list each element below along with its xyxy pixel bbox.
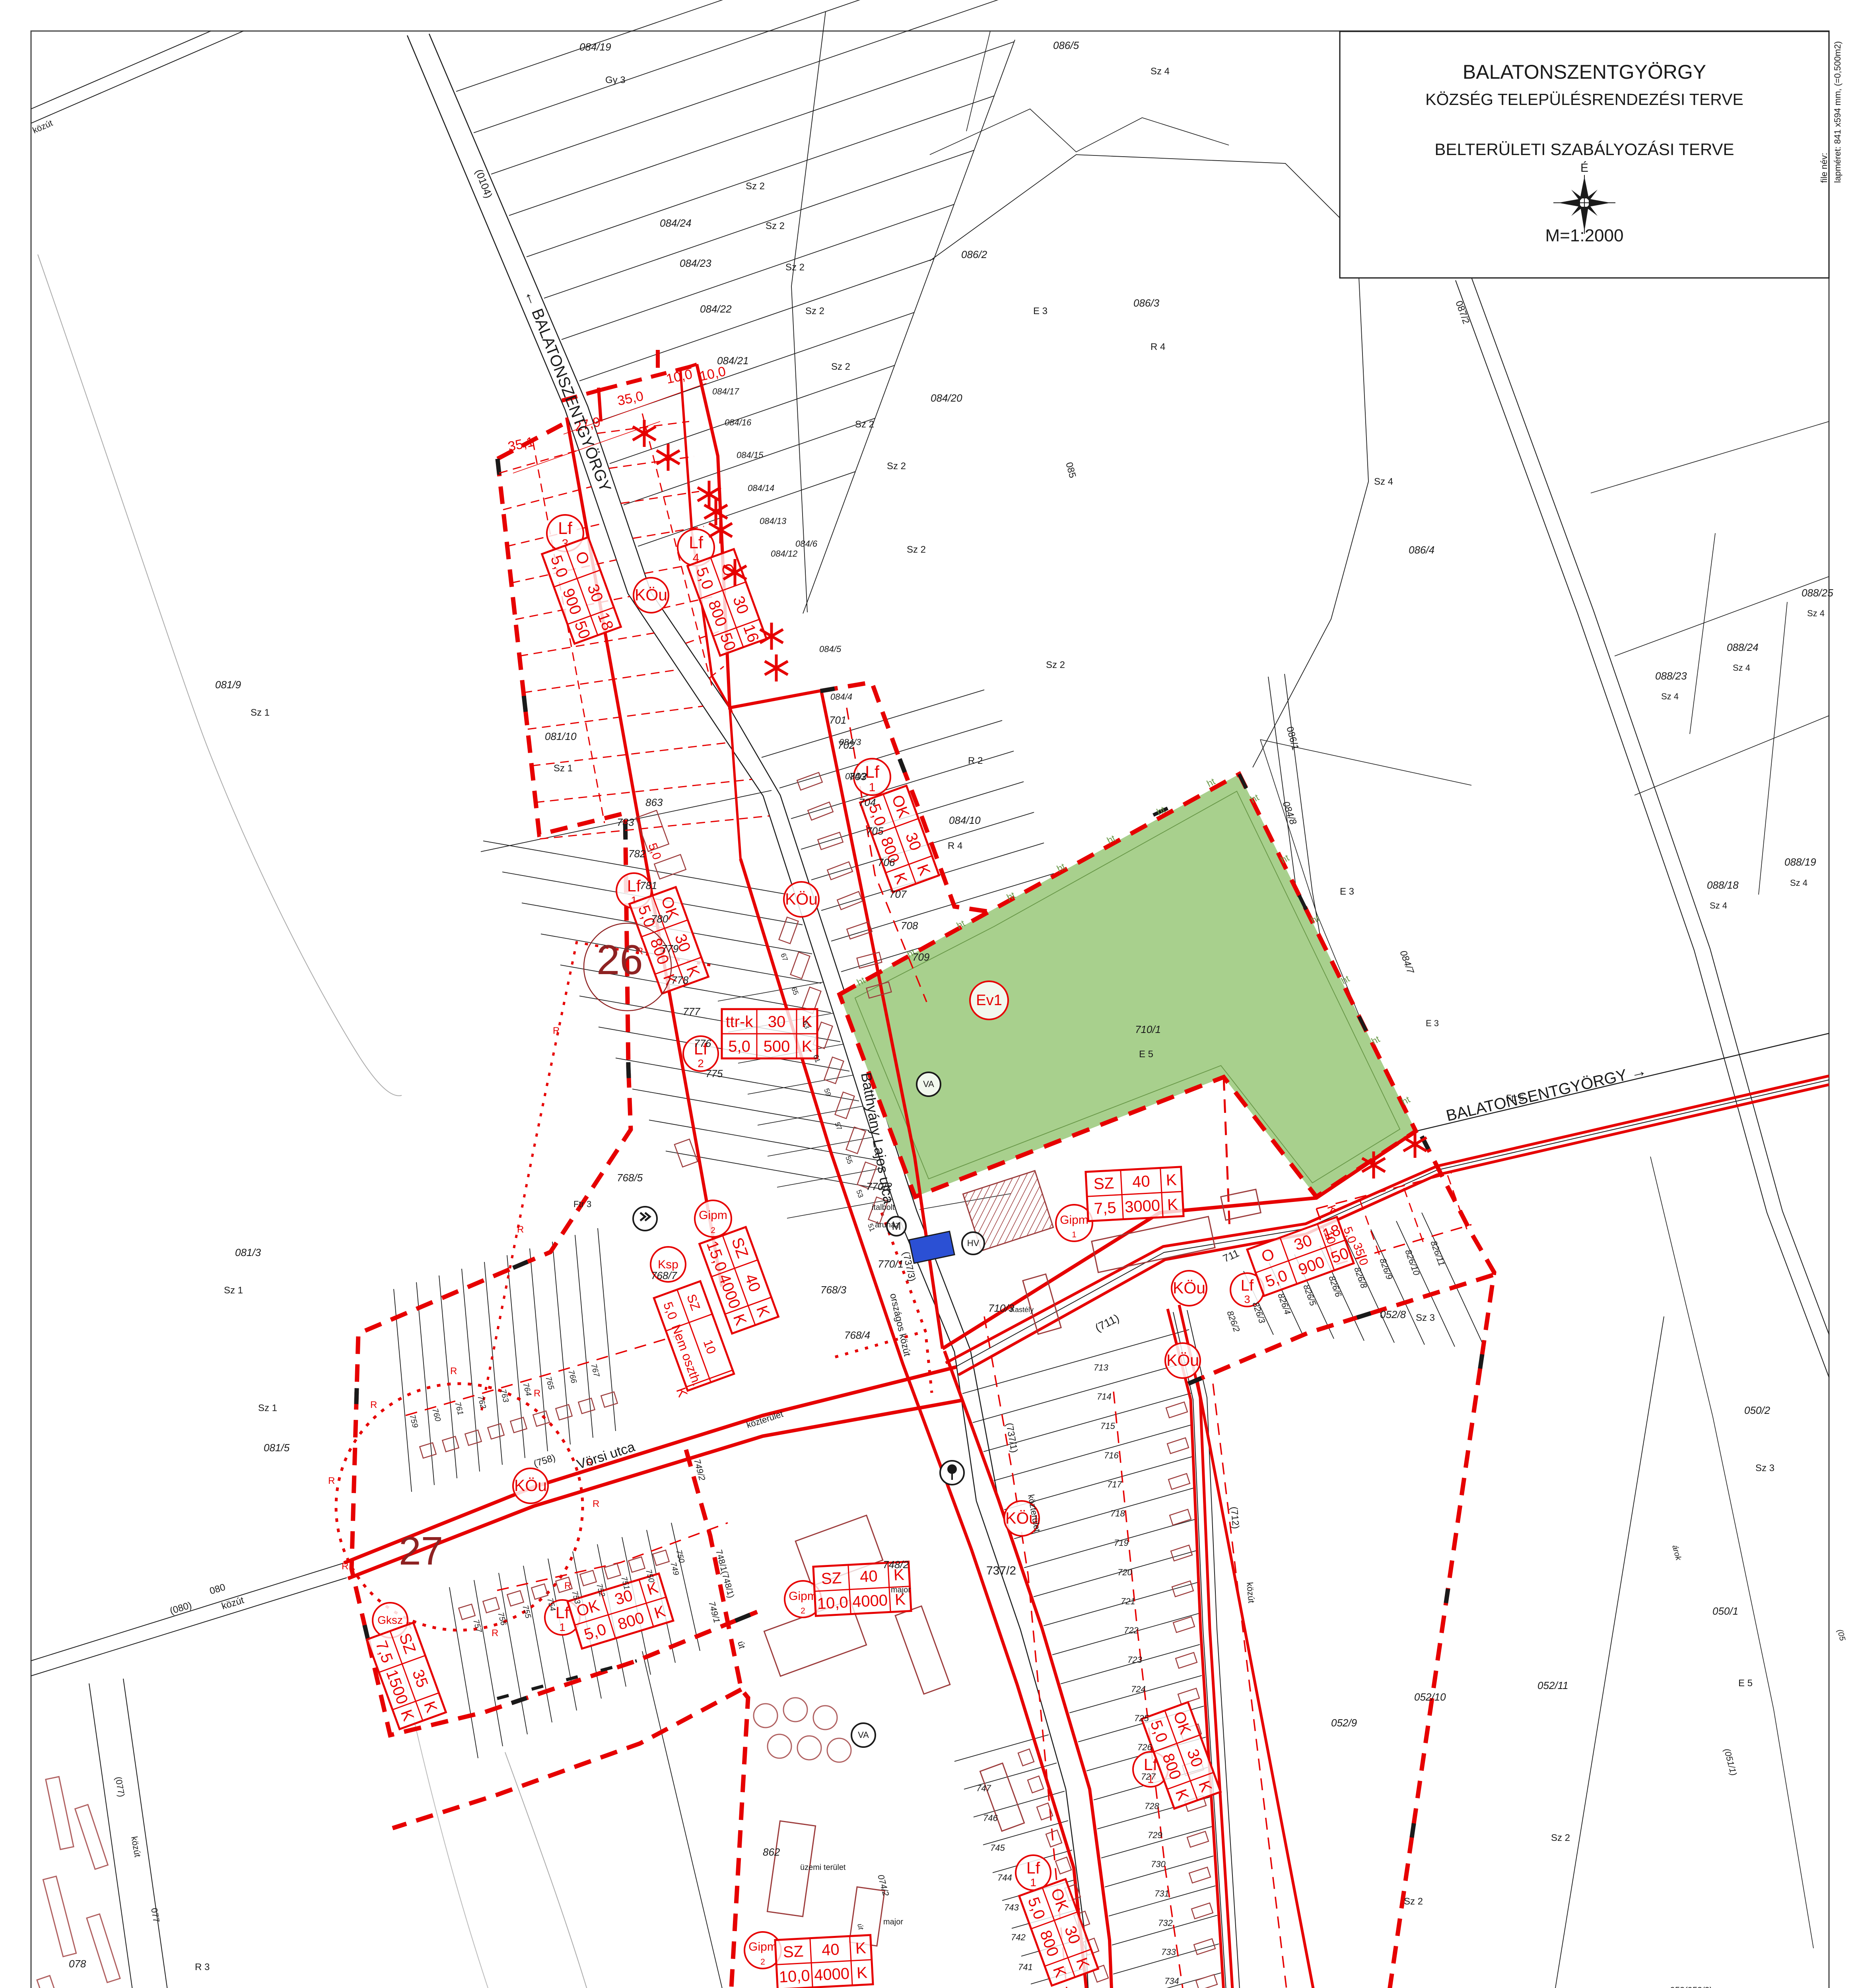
svg-text:748/2: 748/2: [883, 1559, 909, 1571]
svg-text:778: 778: [671, 974, 689, 986]
svg-text:Sz 4: Sz 4: [1151, 66, 1170, 77]
svg-text:4000: 4000: [814, 1965, 850, 1984]
svg-text:714: 714: [1097, 1392, 1112, 1402]
svg-text:R 4: R 4: [1151, 342, 1165, 352]
svg-text:728: 728: [1145, 1801, 1159, 1811]
svg-text:Sz 1: Sz 1: [258, 1403, 277, 1413]
svg-text:052/9: 052/9: [1331, 1717, 1357, 1729]
svg-text:Lf: Lf: [865, 763, 880, 782]
svg-text:M=1:2000: M=1:2000: [1545, 226, 1624, 245]
svg-text:863: 863: [645, 796, 663, 808]
svg-text:K: K: [1166, 1171, 1177, 1189]
svg-text:Sz 2: Sz 2: [1551, 1833, 1570, 1843]
svg-text:084/19: 084/19: [579, 41, 611, 53]
svg-text:VA: VA: [923, 1079, 934, 1089]
svg-text:783: 783: [617, 816, 634, 828]
svg-text:major: major: [883, 1918, 903, 1926]
svg-text:716: 716: [1104, 1450, 1119, 1460]
svg-text:R: R: [553, 1025, 560, 1036]
svg-text:088/19: 088/19: [1784, 856, 1816, 868]
svg-text:R 3: R 3: [195, 1962, 210, 1972]
svg-text:500: 500: [764, 1038, 790, 1055]
svg-text:744: 744: [997, 1873, 1012, 1883]
svg-text:Lf: Lf: [627, 877, 641, 895]
svg-text:2: 2: [711, 1226, 715, 1235]
svg-text:1: 1: [1030, 1876, 1036, 1889]
svg-text:086/3: 086/3: [1133, 297, 1160, 309]
svg-text:719: 719: [1114, 1538, 1129, 1548]
svg-text:Sz 4: Sz 4: [1374, 476, 1393, 487]
svg-text:E 5: E 5: [1738, 1678, 1753, 1689]
svg-text:áruház: áruház: [875, 1221, 899, 1229]
svg-text:Gipm: Gipm: [748, 1940, 777, 1953]
svg-text:Lf: Lf: [558, 519, 573, 538]
svg-text:084/23: 084/23: [680, 257, 711, 269]
svg-text:780: 780: [651, 913, 669, 925]
svg-text:K: K: [1167, 1196, 1178, 1213]
svg-text:710/1: 710/1: [1135, 1023, 1161, 1035]
svg-text:1: 1: [1072, 1230, 1077, 1239]
svg-text:742: 742: [1011, 1932, 1026, 1942]
svg-text:709: 709: [912, 951, 929, 963]
svg-text:SZ: SZ: [1093, 1175, 1114, 1193]
svg-text:3: 3: [1244, 1293, 1250, 1305]
svg-text:086/5: 086/5: [1053, 39, 1079, 51]
svg-text:Sz 1: Sz 1: [554, 763, 573, 774]
svg-text:052/11: 052/11: [1537, 1679, 1568, 1691]
svg-text:708: 708: [901, 920, 918, 932]
svg-text:084/12: 084/12: [771, 549, 797, 559]
svg-text:Sz 2: Sz 2: [1046, 660, 1065, 670]
svg-text:Sz 2: Sz 2: [831, 361, 850, 372]
svg-text:081/9: 081/9: [215, 679, 241, 691]
svg-text:715: 715: [1100, 1421, 1115, 1431]
svg-text:KÖu: KÖu: [1173, 1279, 1205, 1297]
svg-text:776: 776: [694, 1037, 711, 1049]
svg-text:704: 704: [859, 796, 876, 808]
svg-text:Sz 2: Sz 2: [805, 306, 824, 316]
svg-text:Sz 3: Sz 3: [1755, 1463, 1774, 1474]
svg-text:729: 729: [1148, 1830, 1162, 1840]
svg-text:702: 702: [838, 739, 855, 751]
svg-text:R: R: [593, 1499, 599, 1509]
svg-text:084/24: 084/24: [660, 217, 692, 229]
svg-text:Sz 1: Sz 1: [251, 707, 270, 718]
svg-text:Gy 3: Gy 3: [605, 75, 626, 85]
svg-text:27: 27: [399, 1529, 443, 1573]
svg-text:üzemi terület: üzemi terület: [800, 1863, 846, 1872]
svg-text:084/13: 084/13: [760, 516, 787, 526]
svg-text:SZ: SZ: [821, 1569, 842, 1588]
svg-text:782: 782: [628, 848, 646, 860]
svg-text:R 2: R 2: [968, 755, 983, 766]
svg-text:722: 722: [1124, 1625, 1139, 1635]
svg-text:R: R: [450, 1366, 457, 1376]
svg-text:Sz 2: Sz 2: [746, 181, 765, 192]
svg-text:Sz 4: Sz 4: [1661, 691, 1679, 701]
svg-text:701: 701: [829, 714, 846, 726]
svg-text:717: 717: [1107, 1479, 1122, 1489]
svg-text:italbolt: italbolt: [872, 1203, 895, 1212]
svg-text:052/10: 052/10: [1414, 1691, 1446, 1703]
svg-text:741: 741: [1018, 1962, 1033, 1972]
svg-text:Sz 4: Sz 4: [1733, 663, 1750, 673]
svg-text:Ev1: Ev1: [976, 992, 1002, 1009]
svg-text:084/10: 084/10: [949, 814, 981, 826]
svg-text:4000: 4000: [852, 1592, 888, 1611]
svg-text:file név:: file név:: [1819, 153, 1829, 183]
svg-text:770/2: 770/2: [866, 1180, 892, 1192]
svg-text:084/14: 084/14: [748, 483, 774, 493]
svg-text:088/23: 088/23: [1655, 670, 1687, 682]
svg-text:084/17: 084/17: [712, 386, 739, 396]
svg-text:086/4: 086/4: [1409, 544, 1434, 556]
svg-text:081/3: 081/3: [235, 1246, 261, 1258]
svg-text:R: R: [534, 1388, 540, 1399]
svg-text:Ftr 5: Ftr 5: [1506, 1093, 1524, 1103]
svg-text:Sz 2: Sz 2: [785, 262, 805, 273]
svg-text:733: 733: [1161, 1947, 1176, 1957]
svg-text:2: 2: [698, 1057, 704, 1070]
svg-text:Gipm: Gipm: [789, 1590, 817, 1603]
svg-text:1: 1: [559, 1621, 566, 1633]
svg-text:Sz 2: Sz 2: [887, 461, 906, 472]
svg-text:SZ: SZ: [783, 1943, 804, 1961]
svg-text:726: 726: [1137, 1742, 1152, 1752]
svg-text:lapméret: 841 x594 mm, (=0,500: lapméret: 841 x594 mm, (=0,500m2): [1833, 41, 1843, 183]
svg-text:R: R: [370, 1400, 377, 1410]
svg-text:Ftr 3: Ftr 3: [573, 1199, 591, 1209]
svg-text:Gipm: Gipm: [1060, 1213, 1088, 1227]
svg-text:Sz 3: Sz 3: [1416, 1312, 1435, 1323]
svg-text:768/4: 768/4: [844, 1329, 870, 1341]
svg-text:078: 078: [69, 1958, 86, 1970]
svg-text:ttr-k: ttr-k: [726, 1013, 754, 1031]
svg-text:732: 732: [1158, 1918, 1173, 1928]
svg-text:Lf: Lf: [556, 1604, 569, 1622]
svg-text:086/2: 086/2: [961, 248, 987, 260]
svg-text:770/1: 770/1: [878, 1258, 904, 1270]
svg-text:K: K: [855, 1939, 867, 1957]
svg-text:KÖu: KÖu: [514, 1476, 547, 1495]
svg-text:40: 40: [859, 1567, 878, 1586]
svg-text:HV: HV: [967, 1238, 980, 1248]
svg-text:725: 725: [1134, 1713, 1149, 1723]
svg-text:050/1: 050/1: [1712, 1605, 1738, 1617]
svg-text:721: 721: [1121, 1596, 1135, 1606]
svg-text:781: 781: [640, 879, 657, 891]
svg-text:Kastély: Kastély: [1010, 1306, 1034, 1314]
svg-text:E 3: E 3: [1340, 886, 1354, 897]
svg-text:KÖu: KÖu: [785, 890, 818, 908]
svg-text:BELTERÜLETI SZABÁLYOZÁSI TERVE: BELTERÜLETI SZABÁLYOZÁSI TERVE: [1434, 140, 1734, 159]
svg-text:084/16: 084/16: [725, 417, 752, 427]
svg-text:768/5: 768/5: [617, 1172, 643, 1184]
svg-text:745: 745: [990, 1843, 1005, 1853]
svg-text:Lf: Lf: [689, 533, 704, 552]
svg-text:720: 720: [1118, 1567, 1132, 1577]
svg-text:081/5: 081/5: [264, 1442, 290, 1454]
svg-text:30: 30: [768, 1013, 786, 1031]
svg-text:730: 730: [1151, 1859, 1166, 1869]
svg-text:BALATONSZENTGYÖRGY: BALATONSZENTGYÖRGY: [1463, 61, 1706, 83]
svg-text:E 3: E 3: [1426, 1018, 1439, 1028]
svg-text:747: 747: [976, 1783, 991, 1793]
svg-text:084/15: 084/15: [737, 450, 764, 460]
svg-text:050/2: 050/2: [1744, 1404, 1771, 1416]
svg-text:(712): (712): [1228, 1506, 1241, 1529]
svg-text:707: 707: [889, 888, 907, 900]
svg-text:706: 706: [878, 856, 895, 868]
svg-text:7,5: 7,5: [1094, 1199, 1117, 1218]
svg-text:3000: 3000: [1124, 1197, 1160, 1216]
svg-text:084/6: 084/6: [795, 539, 818, 549]
svg-text:VA: VA: [858, 1730, 869, 1740]
svg-text:40: 40: [821, 1941, 840, 1959]
svg-text:2: 2: [760, 1957, 765, 1967]
svg-text:724: 724: [1131, 1684, 1146, 1694]
svg-text:1: 1: [869, 781, 876, 794]
svg-text:2: 2: [801, 1606, 805, 1615]
svg-text:081/10: 081/10: [545, 730, 577, 742]
svg-text:727: 727: [1141, 1772, 1156, 1782]
svg-text:KÖZSÉG TELEPÜLÉSRENDEZÉSI TERV: KÖZSÉG TELEPÜLÉSRENDEZÉSI TERVE: [1425, 90, 1743, 109]
svg-text:713: 713: [1094, 1363, 1108, 1373]
svg-text:10,0: 10,0: [779, 1967, 810, 1986]
svg-text:084/22: 084/22: [700, 303, 732, 315]
svg-text:Sz 1: Sz 1: [224, 1285, 243, 1296]
svg-text:Sz 2: Sz 2: [855, 419, 874, 430]
svg-text:Sz 4: Sz 4: [1710, 901, 1727, 911]
svg-text:40: 40: [1132, 1173, 1151, 1191]
svg-text:R: R: [328, 1475, 335, 1486]
svg-text:Gipm: Gipm: [699, 1209, 727, 1222]
svg-text:052/8: 052/8: [1380, 1309, 1406, 1320]
svg-text:R 4: R 4: [948, 841, 962, 851]
svg-text:major: major: [891, 1586, 911, 1594]
svg-text:743: 743: [1004, 1903, 1019, 1912]
svg-text:768/3: 768/3: [820, 1284, 847, 1296]
svg-text:5,0: 5,0: [728, 1038, 750, 1055]
svg-text:26: 26: [597, 937, 643, 983]
svg-text:E 5: E 5: [1139, 1049, 1153, 1060]
svg-text:775: 775: [706, 1068, 723, 1079]
svg-text:Sz 4: Sz 4: [1790, 878, 1808, 888]
svg-text:862: 862: [763, 1846, 780, 1858]
svg-text:777: 777: [683, 1006, 701, 1017]
svg-text:088/25: 088/25: [1802, 587, 1833, 599]
svg-text:K: K: [856, 1964, 868, 1982]
svg-text:088/18: 088/18: [1707, 879, 1739, 891]
svg-text:É́: É́: [1580, 161, 1588, 175]
svg-text:737/2: 737/2: [986, 1564, 1016, 1577]
svg-text:közút: közút: [1245, 1582, 1256, 1604]
svg-text:084/4: 084/4: [830, 692, 852, 702]
svg-text:779: 779: [661, 943, 678, 955]
svg-text:R: R: [342, 1561, 348, 1572]
svg-text:768/7: 768/7: [651, 1270, 678, 1281]
svg-text:053(053/3): 053(053/3): [1670, 1985, 1712, 1988]
svg-text:Lf: Lf: [1026, 1859, 1040, 1877]
svg-text:Lf: Lf: [1241, 1277, 1254, 1294]
svg-text:E 3: E 3: [1033, 306, 1048, 316]
svg-text:10,0: 10,0: [817, 1594, 849, 1613]
svg-text:Sz 4: Sz 4: [1807, 608, 1825, 618]
svg-text:084/5: 084/5: [819, 644, 842, 654]
svg-text:K: K: [802, 1038, 812, 1055]
svg-text:734: 734: [1164, 1976, 1179, 1986]
svg-text:084/20: 084/20: [931, 392, 962, 404]
svg-text:705: 705: [866, 825, 884, 837]
svg-text:718: 718: [1110, 1508, 1125, 1518]
svg-text:Sz 2: Sz 2: [1404, 1896, 1423, 1907]
svg-text:Sz 2: Sz 2: [907, 544, 926, 555]
svg-text:R: R: [492, 1628, 498, 1639]
svg-text:KÖu: KÖu: [1166, 1351, 1199, 1369]
svg-text:703: 703: [849, 771, 867, 782]
svg-text:Gksz: Gksz: [377, 1614, 403, 1626]
svg-text:088/24: 088/24: [1727, 641, 1759, 653]
svg-text:KÖu: KÖu: [635, 586, 667, 604]
svg-text:731: 731: [1154, 1889, 1169, 1899]
svg-text:Sz 2: Sz 2: [766, 221, 785, 231]
svg-text:723: 723: [1127, 1655, 1142, 1665]
svg-text:084/21: 084/21: [717, 355, 749, 367]
svg-text:746: 746: [983, 1813, 998, 1823]
svg-text:R: R: [517, 1224, 524, 1235]
